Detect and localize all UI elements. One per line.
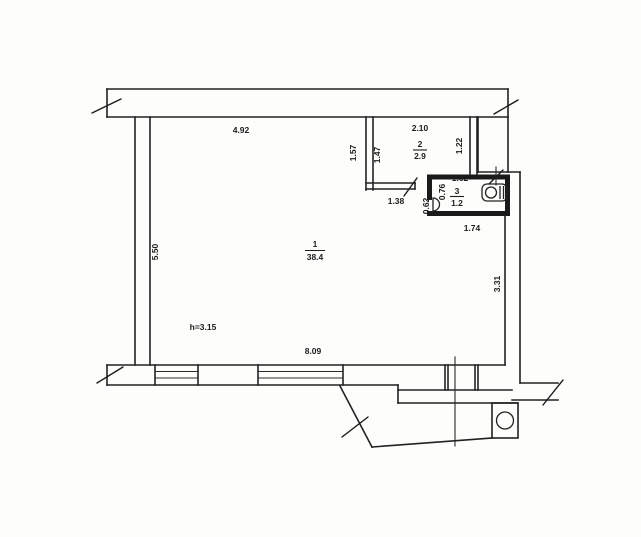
room-3-area: 1.2	[451, 198, 463, 208]
break-mark-balcony	[342, 417, 368, 437]
window-right	[258, 365, 343, 385]
window-left	[155, 365, 198, 385]
dim-room2-depth-outer: 1.57	[348, 144, 358, 161]
break-mark-bottom-left	[97, 367, 123, 383]
shaft-walls	[478, 117, 520, 172]
dim-wc-door-offset: 0.62	[421, 197, 431, 214]
room-label-3: 3 1.2	[450, 186, 464, 208]
room-label-1: 1 38.4	[305, 239, 325, 262]
dim-wc-width: 1.62	[452, 173, 469, 183]
room-3-number: 3	[455, 186, 460, 196]
dim-bottom-width: 8.09	[305, 346, 322, 356]
floor-plan-drawing: 4.92 2.10 1.57 1.47 1.22 1.38 0.62 0.76 …	[0, 0, 641, 537]
break-mark-top-right	[494, 100, 518, 114]
dim-hall-width: 1.38	[388, 196, 405, 206]
dim-wc-outer-width: 1.74	[464, 223, 481, 233]
dim-room2-left: 1.47	[372, 146, 382, 163]
room-1-number: 1	[313, 239, 318, 249]
room-label-2: 2 2.9	[413, 139, 427, 161]
room-2-number: 2	[418, 139, 423, 149]
room-2-area: 2.9	[414, 151, 426, 161]
dim-room2-width: 2.10	[412, 123, 429, 133]
top-wall	[107, 89, 508, 117]
bottom-step-wall	[398, 357, 518, 446]
floor-plan-sheet: 4.92 2.10 1.57 1.47 1.22 1.38 0.62 0.76 …	[0, 0, 641, 537]
left-wall	[135, 117, 150, 365]
dim-top-width: 4.92	[233, 125, 250, 135]
dim-wc-depth: 0.76	[437, 183, 447, 200]
room-1-area: 38.4	[307, 252, 324, 262]
height-note: h=3.15	[190, 322, 217, 332]
dim-right-lower-height: 3.31	[492, 275, 502, 292]
balcony-outline	[340, 386, 518, 447]
right-wall-stub	[512, 383, 558, 400]
dim-room2-right: 1.22	[454, 137, 464, 154]
dim-left-height: 5.50	[150, 243, 160, 260]
toilet-icon	[482, 184, 507, 201]
